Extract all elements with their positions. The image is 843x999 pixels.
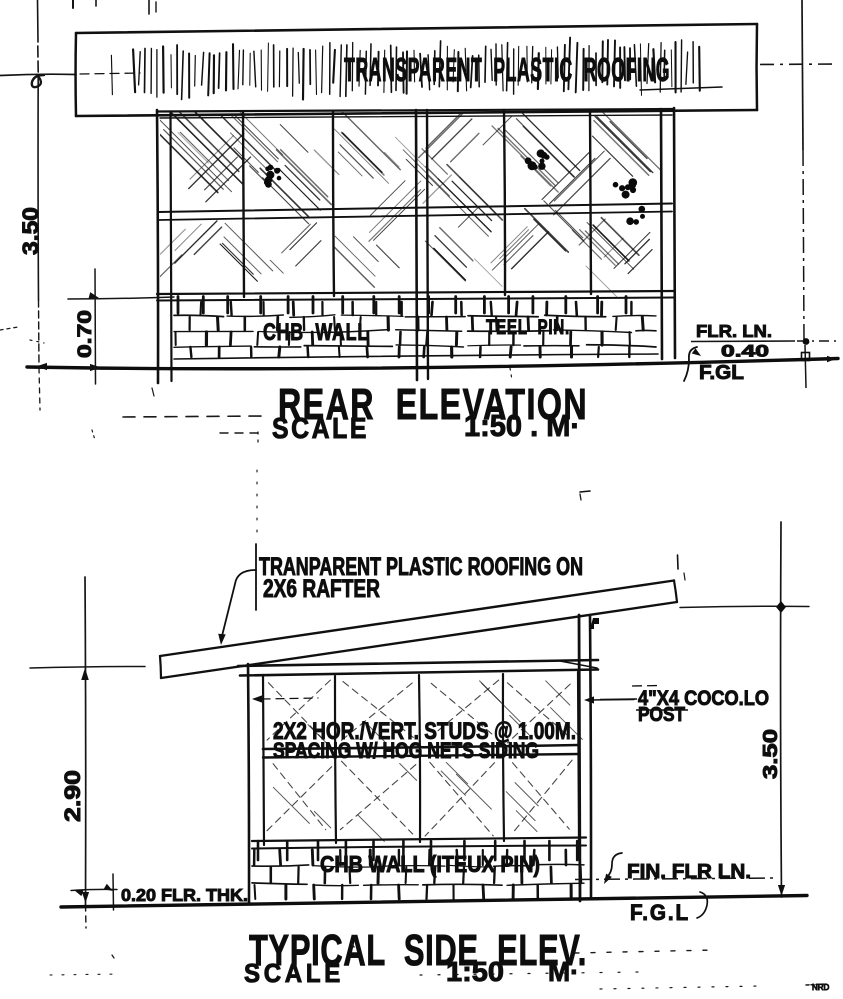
svg-text:1:50: 1:50 <box>446 956 504 987</box>
svg-text:TRANSPARENT PLASTIC ROOFING: TRANSPARENT PLASTIC ROOFING <box>344 51 670 88</box>
svg-text:3.50: 3.50 <box>760 729 782 779</box>
svg-text:2X6 RAFTER: 2X6 RAFTER <box>263 575 380 603</box>
svg-text:0.70: 0.70 <box>75 310 96 358</box>
svg-text:F.GL: F.GL <box>699 362 744 384</box>
svg-text:0.40: 0.40 <box>721 343 769 361</box>
svg-text:0.20 FLR. THK.: 0.20 FLR. THK. <box>121 885 248 905</box>
svg-text:TEEL PIN.: TEEL PIN. <box>486 316 570 339</box>
svg-text:1:50 . M·: 1:50 . M· <box>464 408 580 443</box>
svg-text:CHB WALL: CHB WALL <box>263 319 369 346</box>
svg-text:3.50: 3.50 <box>18 207 43 255</box>
svg-text:SCALE: SCALE <box>244 958 344 988</box>
svg-text:POST: POST <box>638 704 685 726</box>
svg-text:F.G.L: F.G.L <box>630 900 690 925</box>
svg-text:SCALE: SCALE <box>272 413 369 445</box>
svg-text:M·: M· <box>548 956 579 987</box>
svg-text:2.90: 2.90 <box>60 770 85 822</box>
svg-text:CHB WALL (ITEUX PIN): CHB WALL (ITEUX PIN) <box>320 851 540 877</box>
svg-text:NRD: NRD <box>812 983 830 992</box>
svg-text:FLR. LN.: FLR. LN. <box>696 321 772 341</box>
svg-text:SPACING W/ HOG NETS SIDING: SPACING W/ HOG NETS SIDING <box>273 738 539 763</box>
